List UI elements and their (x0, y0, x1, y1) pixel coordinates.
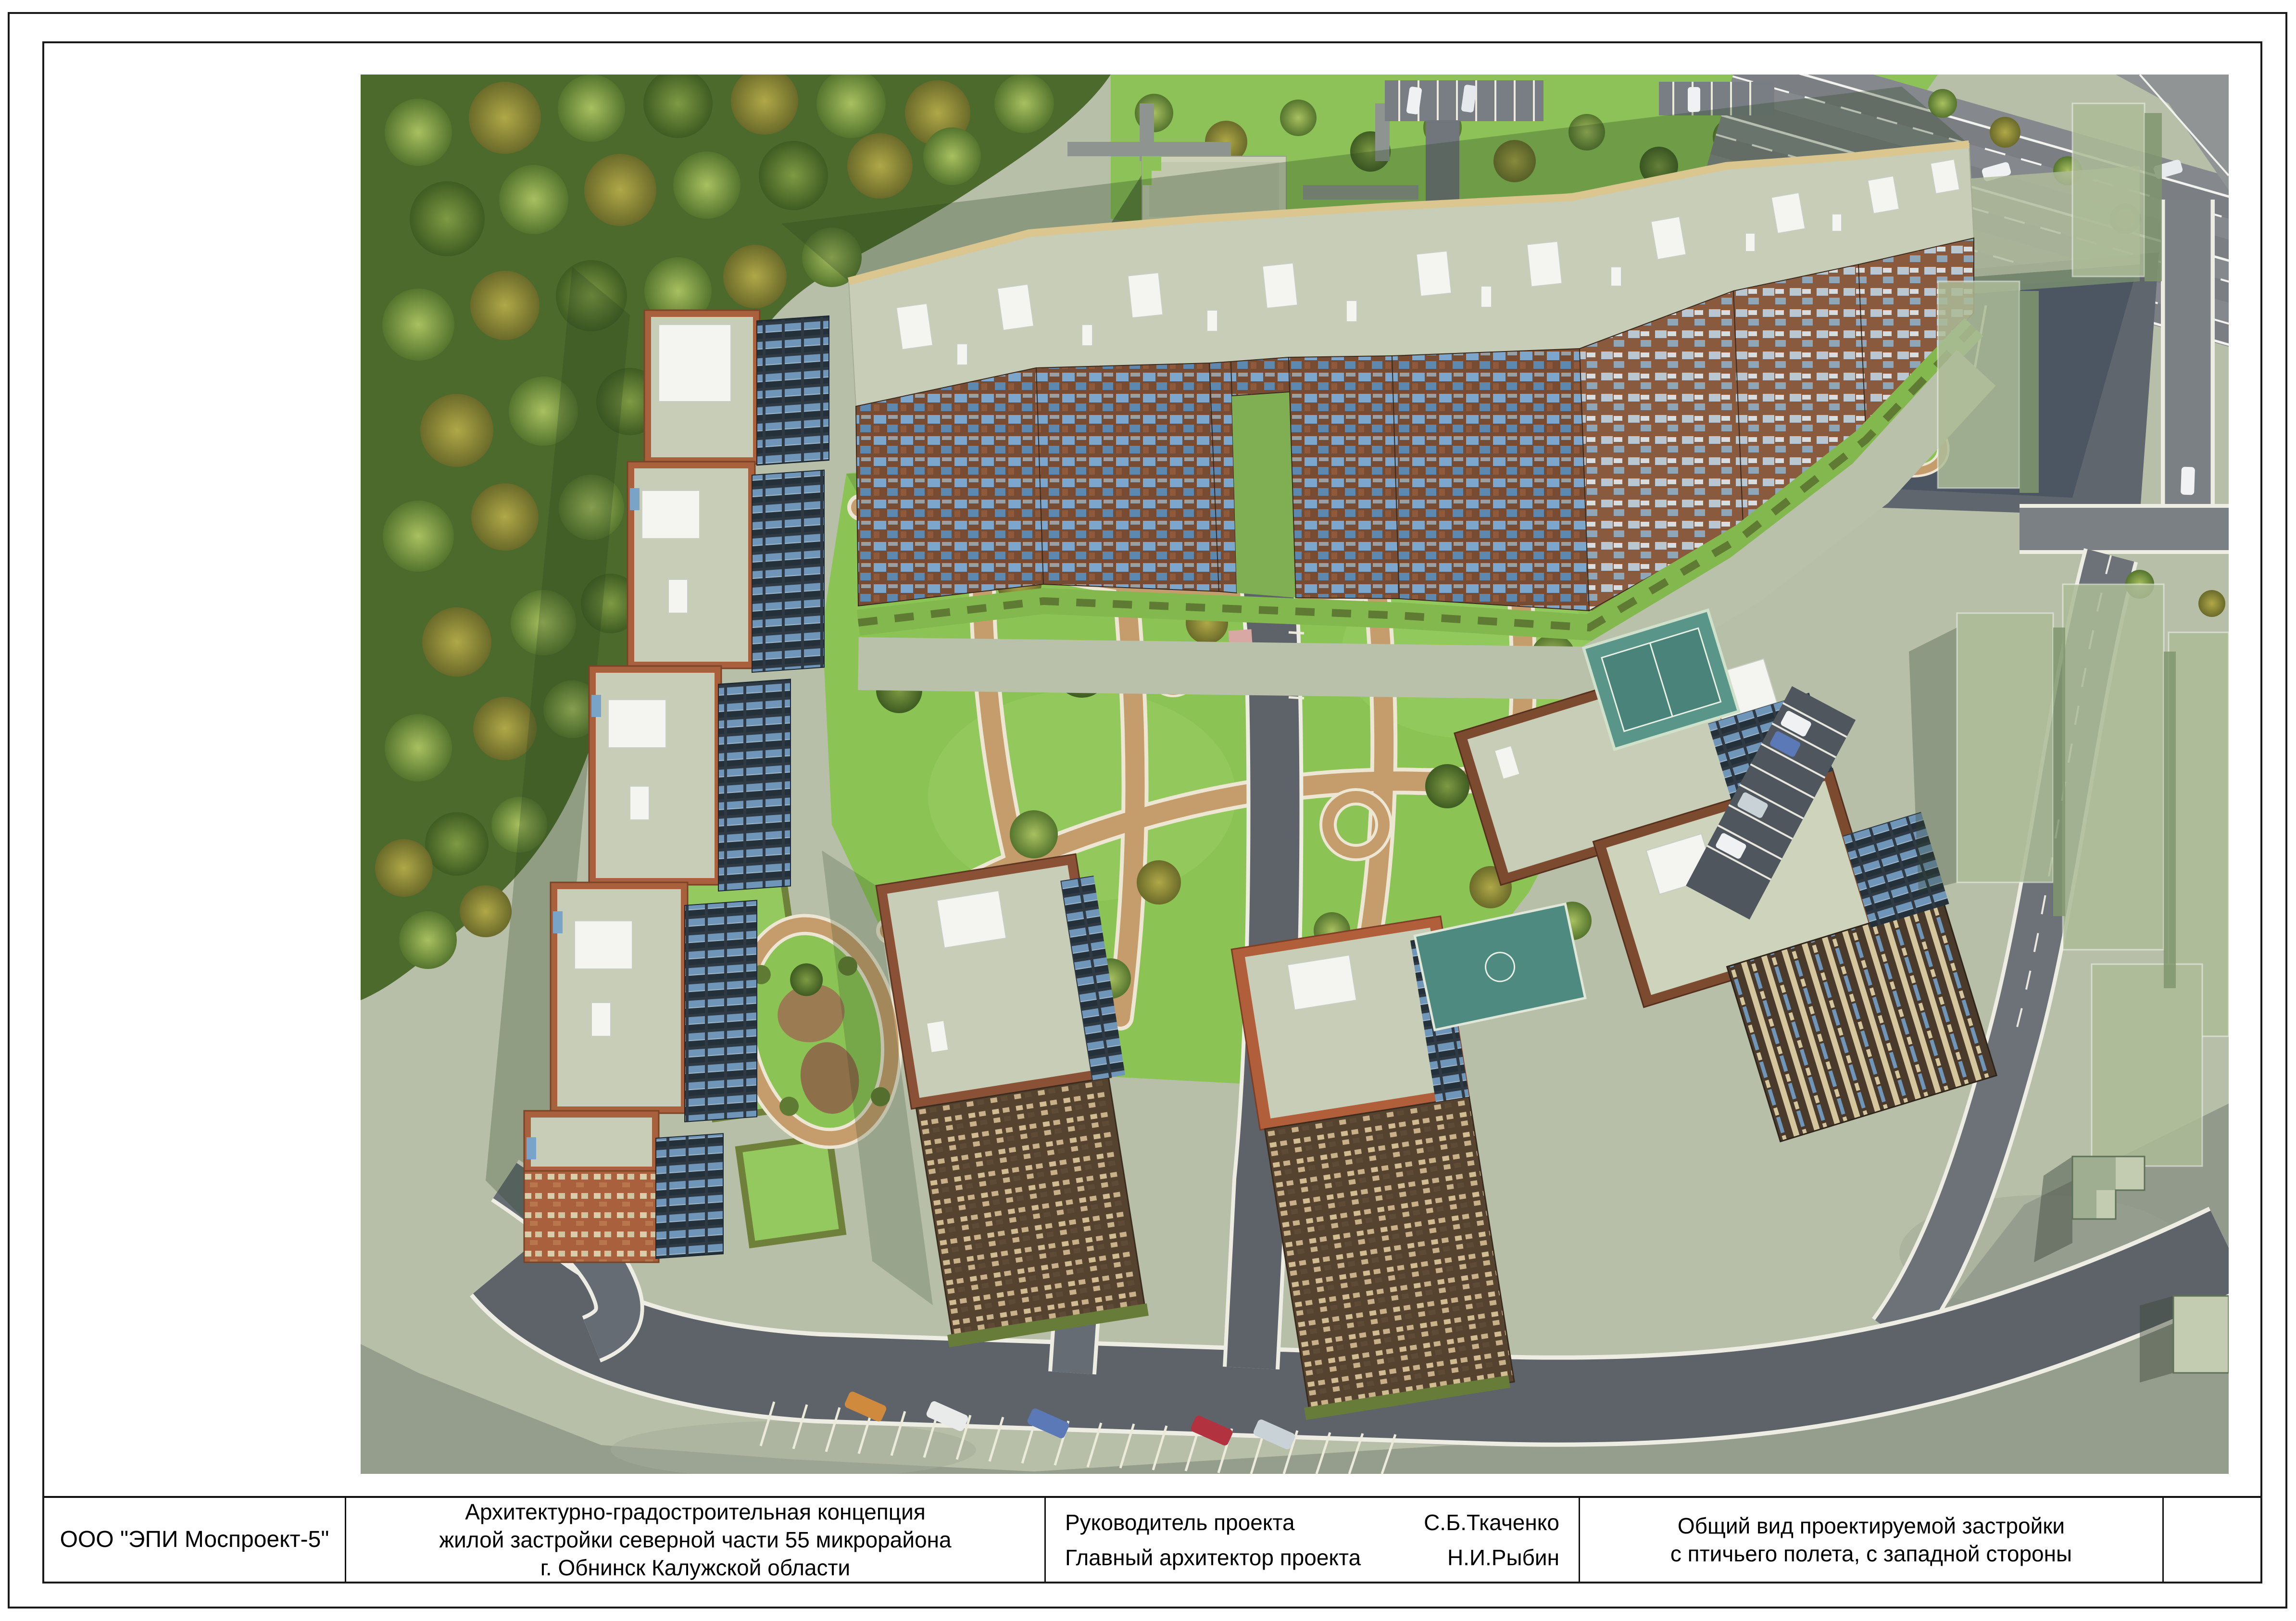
sheet: ООО "ЭПИ Моспроект-5" Архитектурно-градо… (0, 0, 2296, 1621)
sheet-title-cell: Общий вид проектируемой застройки с птич… (1580, 1498, 2164, 1582)
sheet-title-line2: с птичьего полета, с западной стороны (1670, 1540, 2072, 1568)
signature-label: Главный архитектор проекта (1065, 1544, 1361, 1571)
site-rendering (361, 75, 2229, 1474)
signature-name: С.Б.Ткаченко (1424, 1508, 1559, 1536)
company-cell: ООО "ЭПИ Моспроект-5" (44, 1498, 346, 1582)
signature-name: Н.И.Рыбин (1447, 1544, 1559, 1571)
project-title-cell: Архитектурно-градостроительная концепция… (346, 1498, 1046, 1582)
project-line2: жилой застройки северной части 55 микрор… (439, 1526, 951, 1554)
company-name: ООО "ЭПИ Моспроект-5" (60, 1526, 329, 1554)
signature-label: Руководитель проекта (1065, 1508, 1295, 1536)
sheet-title-line1: Общий вид проектируемой застройки (1678, 1512, 2065, 1540)
title-block: ООО "ЭПИ Моспроект-5" Архитектурно-градо… (44, 1496, 2260, 1582)
signatures-cell: Руководитель проекта С.Б.Ткаченко Главны… (1046, 1498, 1580, 1582)
project-line3: г. Обнинск Калужской области (540, 1554, 851, 1582)
project-line1: Архитектурно-градостроительная концепция (465, 1498, 925, 1526)
signature-row: Главный архитектор проекта Н.И.Рыбин (1065, 1544, 1559, 1571)
signature-row: Руководитель проекта С.Б.Ткаченко (1065, 1508, 1559, 1536)
empty-cell (2164, 1498, 2260, 1582)
